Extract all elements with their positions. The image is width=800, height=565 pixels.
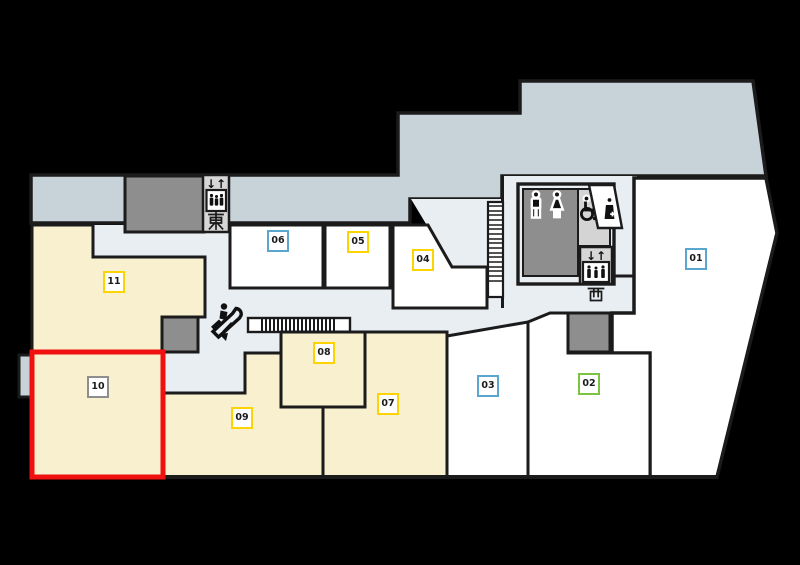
service-block-mid <box>162 317 198 352</box>
unit-label-04[interactable]: 04 <box>412 249 434 271</box>
unit-label-07[interactable]: 07 <box>377 393 399 415</box>
restroom-block: ↓↑ <box>518 184 622 301</box>
kanji-east <box>209 213 223 230</box>
unit-label-03[interactable]: 03 <box>477 375 499 397</box>
elevator-west-arrows-icon: ↓↑ <box>586 249 606 263</box>
elevator-west[interactable]: ↓↑ <box>580 247 612 284</box>
unit-label-11[interactable]: 11 <box>103 271 125 293</box>
unit-label-02[interactable]: 02 <box>578 373 600 395</box>
unit-label-06[interactable]: 06 <box>267 230 289 252</box>
service-block-west <box>568 313 610 352</box>
floor-map: ↓↑ <box>0 0 800 565</box>
unit-label-10[interactable]: 10 <box>87 376 109 398</box>
unit-label-09[interactable]: 09 <box>231 407 253 429</box>
unit-03-area[interactable] <box>447 322 528 477</box>
unit-10-area-highlighted[interactable] <box>32 352 163 477</box>
elevator-east-arrows-icon: ↓↑ <box>206 177 226 191</box>
unit-label-01[interactable]: 01 <box>685 248 707 270</box>
elevator-east[interactable]: ↓↑ <box>203 175 229 232</box>
elevator-west-people-icon <box>587 265 605 278</box>
stairs-icon <box>488 202 503 297</box>
moving-walkway-icon <box>248 318 350 332</box>
mens-restroom-icon <box>532 191 540 217</box>
unit-label-08[interactable]: 08 <box>313 342 335 364</box>
elevator-east-people-icon <box>210 194 224 206</box>
unit-label-05[interactable]: 05 <box>347 231 369 253</box>
service-block-north <box>125 176 204 232</box>
